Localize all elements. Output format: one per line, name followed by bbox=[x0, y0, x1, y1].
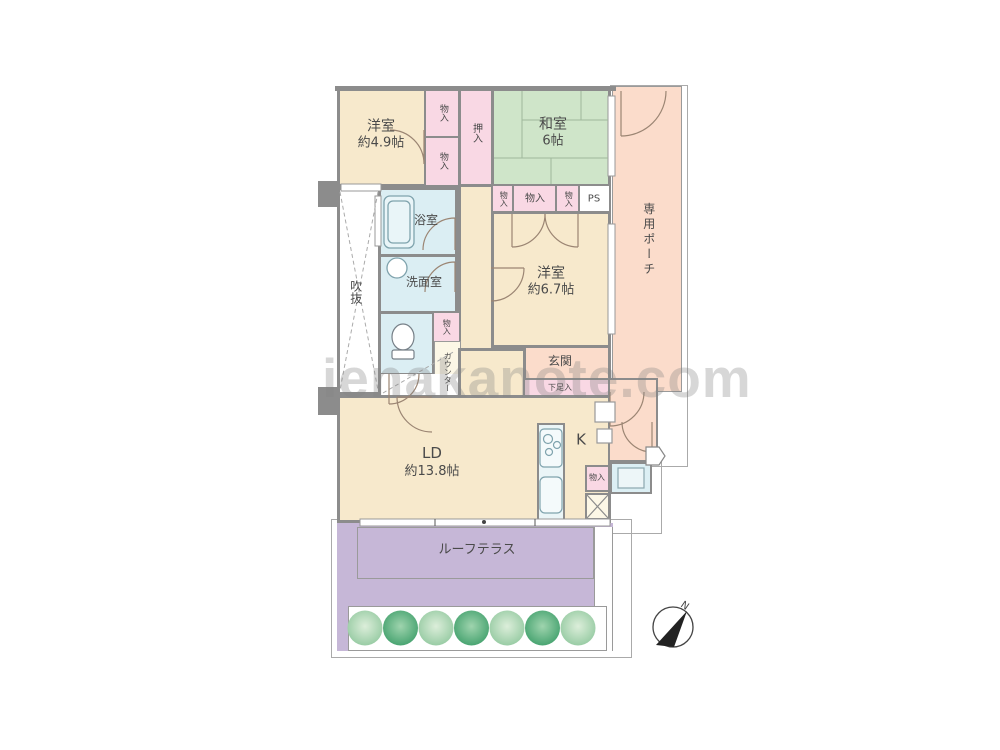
compass-north-label: N bbox=[678, 599, 690, 612]
window-bath bbox=[375, 196, 381, 246]
tree-icon bbox=[454, 611, 489, 646]
label-storage-a: 物入 bbox=[436, 104, 448, 122]
label-void: 吹抜 bbox=[347, 280, 363, 304]
window-center-mark bbox=[482, 520, 486, 524]
window-openings bbox=[341, 96, 615, 526]
label-roof-terrace: ルーフテラス bbox=[439, 543, 516, 560]
compass-icon: N bbox=[653, 599, 693, 647]
label-storage-d: 物入 bbox=[525, 193, 545, 206]
stove-icon bbox=[540, 429, 562, 467]
label-storage-g: 物入 bbox=[589, 473, 605, 483]
label-shoe-storage: 下足入 bbox=[548, 383, 572, 393]
label-kitchen: K bbox=[576, 430, 586, 450]
door-arc-closet-right bbox=[545, 214, 578, 247]
tree-icons bbox=[348, 611, 596, 646]
floor-plan: N 洋室 約4.9帖 物入 物入 押入 和室 6帖 物入 物入 物入 PS 洋室… bbox=[0, 0, 1000, 750]
sink-icon bbox=[387, 258, 407, 278]
label-western-4_9: 洋室 約4.9帖 bbox=[358, 117, 405, 152]
label-western-6_7: 洋室 約6.7帖 bbox=[528, 264, 575, 299]
label-storage-c: 物入 bbox=[498, 191, 508, 207]
window-washitsu bbox=[608, 96, 615, 176]
label-storage-f: 物入 bbox=[441, 319, 451, 335]
bathtub-icon bbox=[384, 196, 414, 248]
label-living-dining: LD 約13.8帖 bbox=[405, 444, 460, 480]
tree-icon bbox=[419, 611, 454, 646]
meter-box-cross bbox=[587, 495, 608, 518]
appliance-inner bbox=[618, 468, 644, 488]
door-arc-western67 bbox=[491, 268, 524, 301]
window-western67 bbox=[608, 224, 615, 334]
label-bath: 浴室 bbox=[414, 213, 438, 229]
tree-icon bbox=[490, 611, 525, 646]
label-private-porch: 専用ポーチ bbox=[640, 203, 656, 278]
label-storage-b: 物入 bbox=[436, 152, 448, 170]
label-entrance: 玄関 bbox=[548, 354, 572, 370]
entrance-door-icon bbox=[646, 447, 665, 465]
window-western49 bbox=[341, 184, 381, 191]
tree-icon bbox=[525, 611, 560, 646]
tree-icon bbox=[348, 611, 383, 646]
label-pipe-space: PS bbox=[588, 193, 600, 206]
label-japanese-6: 和室 6帖 bbox=[539, 115, 567, 150]
label-oshiire: 押入 bbox=[470, 123, 483, 143]
door-arc-closet-left bbox=[512, 214, 545, 247]
tree-icon bbox=[561, 611, 596, 646]
tree-icon bbox=[383, 611, 418, 646]
door-arc-porch-top bbox=[621, 91, 666, 136]
label-counter: カウンター bbox=[442, 352, 452, 392]
watermark: ienakanote.com bbox=[322, 346, 752, 410]
label-storage-e: 物入 bbox=[563, 191, 573, 207]
label-washroom: 洗面室 bbox=[406, 275, 442, 291]
kitchen-sink-icon bbox=[540, 477, 562, 513]
